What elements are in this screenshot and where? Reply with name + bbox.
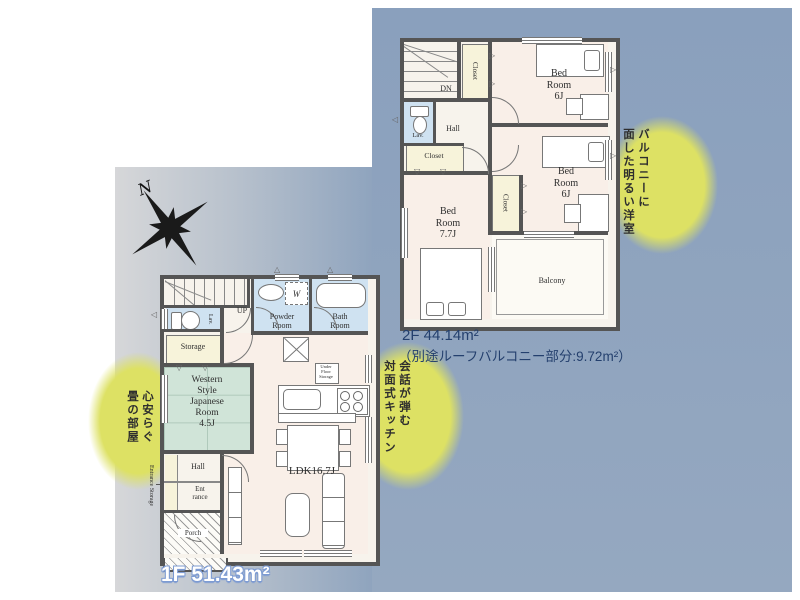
window — [401, 208, 408, 258]
refrigerator-icon — [283, 337, 309, 362]
closet-door-mark-icon: ▷ — [521, 208, 527, 216]
wall — [164, 329, 220, 332]
window — [275, 274, 299, 281]
ldk-label: LDK16.7J — [280, 465, 344, 478]
under-floor-storage-label: Under Floor Storage — [315, 365, 337, 380]
toilet-bowl-icon — [181, 311, 200, 330]
stove-icon — [337, 388, 368, 415]
stairs-dn-label: DN — [434, 84, 458, 93]
floorplan-page: N — [0, 0, 800, 600]
floor2-area-label: 2F 44.14m² — [402, 327, 479, 344]
wall — [250, 363, 254, 454]
vent-icon: ◁ — [151, 311, 157, 319]
compass-north-label: N — [134, 176, 156, 200]
wall — [164, 510, 222, 513]
floor1-area-label: 1F 51.43m² — [161, 563, 270, 587]
closet-door-mark-icon: ▽ — [202, 364, 208, 372]
wall — [309, 279, 312, 331]
balcony-label: Balcony — [520, 276, 584, 285]
wall — [251, 331, 368, 335]
vent-icon: ▷ — [610, 66, 616, 74]
partition-line — [177, 455, 178, 511]
wall — [433, 100, 436, 145]
counter-front — [278, 413, 356, 423]
closet-label: Closet — [462, 48, 488, 94]
annotation-bright-room: バルコニーに 面した明るい洋室 — [620, 128, 650, 252]
floor1-plan: W Under Floor Storage ▽ ▽ △ — [160, 275, 380, 566]
window — [161, 309, 168, 329]
window — [328, 274, 352, 281]
annotation-tatami-room: 心安らぐ 畳の部屋 — [124, 390, 154, 470]
powder-room-label: Powder Room — [258, 312, 306, 330]
lavatory-label: Lav. — [202, 309, 218, 329]
chair-icon — [564, 204, 581, 223]
storage-label: Storage — [168, 342, 218, 351]
vent-icon: ▷ — [610, 152, 616, 160]
chair-icon — [276, 429, 288, 445]
floor1-stairs — [165, 279, 247, 305]
sofa-icon — [322, 473, 345, 549]
wall — [251, 279, 254, 331]
chair-icon — [339, 429, 351, 445]
window — [522, 37, 582, 44]
annotation-kitchen: 会話が弾む 対面式キッチン — [381, 360, 411, 468]
pillow-icon — [448, 302, 466, 316]
bedroom-north-label: Bed Room 6J — [526, 68, 592, 103]
washing-machine-icon: W — [285, 282, 308, 305]
window — [365, 417, 372, 463]
closet-door-mark-icon: ▷ — [489, 52, 495, 60]
closet-label: Closet — [492, 180, 519, 226]
closet-door-mark-icon: ▽ — [440, 168, 446, 176]
vent-icon: ◁ — [392, 116, 398, 124]
window — [304, 550, 352, 557]
floor2-plan: ▷ ▷ ▷ ▷ ▽ ▽ ▷ ▷ ◁ DN Hall Lav. Closet Cl… — [400, 38, 620, 331]
closet-label: Closet — [408, 152, 460, 161]
wall — [404, 98, 492, 102]
closet-door-mark-icon: ▽ — [176, 364, 182, 372]
western-room-label: Western Style Japanese Room 4.5J — [168, 375, 246, 430]
kitchen-sink-icon — [283, 389, 321, 410]
wall — [164, 450, 254, 454]
hall-label: Hall — [180, 462, 216, 471]
porch-label: Porch — [178, 529, 208, 537]
compass-rose: N — [118, 172, 218, 272]
door-arc — [462, 147, 489, 174]
wall — [404, 143, 464, 146]
vent-icon: △ — [274, 266, 280, 274]
partition-line — [164, 481, 220, 483]
stairs-up-label: UP — [230, 306, 254, 315]
window — [365, 355, 372, 383]
sink-icon — [258, 284, 284, 301]
hall-label: Hall — [438, 124, 468, 133]
entrance-label: Ent rance — [186, 485, 214, 501]
lavatory-label: Lav. — [405, 132, 431, 139]
bedroom-south-label: Bed Room 7.7J — [412, 206, 484, 241]
closet-door-mark-icon: ▷ — [489, 80, 495, 88]
floor2-area-note: （別途ルーフバルコニー部分:9.72m²） — [398, 345, 632, 365]
pillow-icon — [426, 302, 444, 316]
pillow-icon — [588, 142, 604, 162]
wall — [247, 279, 250, 308]
sliding-door — [488, 247, 495, 292]
window — [605, 140, 612, 180]
closet-door-mark-icon: ▽ — [414, 168, 420, 176]
window — [161, 375, 168, 423]
sliding-door — [524, 231, 574, 238]
floor1-entrance-storage — [165, 455, 177, 511]
window — [260, 550, 302, 557]
closet-door-mark-icon: ▷ — [521, 182, 527, 190]
bathtub-icon — [316, 283, 366, 308]
coffee-table-icon — [285, 493, 310, 537]
vent-icon: △ — [327, 266, 333, 274]
bedroom-east-label: Bed Room 6J — [532, 166, 600, 201]
bath-room-label: Bath Room — [314, 312, 366, 330]
